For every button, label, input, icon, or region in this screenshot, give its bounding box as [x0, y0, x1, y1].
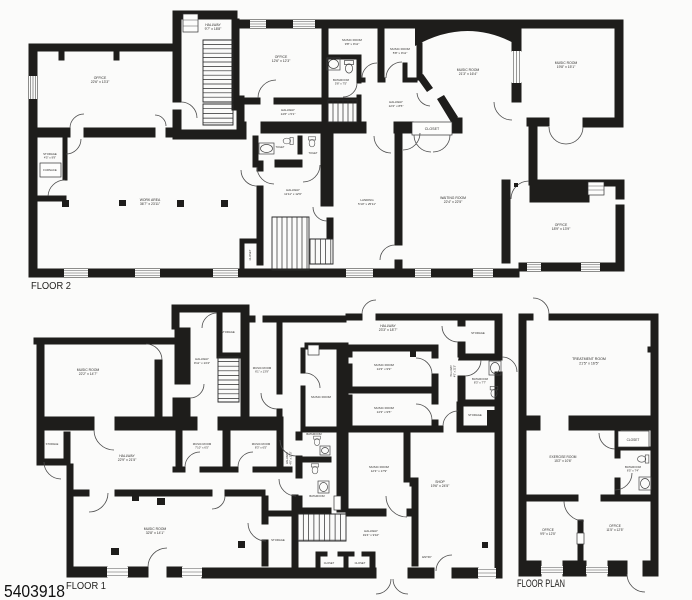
svg-text:HALLWAY14'6" x 5'1": HALLWAY14'6" x 5'1"	[281, 108, 296, 116]
svg-text:WORK AREA36'7" x 23'11": WORK AREA36'7" x 23'11"	[140, 198, 161, 206]
svg-text:STORAGE: STORAGE	[271, 538, 285, 542]
svg-text:MUSIC ROOM: MUSIC ROOM	[311, 395, 331, 399]
svg-text:HALLWAY22'9" x 21'5": HALLWAY22'9" x 21'5"	[118, 454, 137, 462]
svg-text:ENTRY: ENTRY	[422, 555, 432, 559]
svg-text:LANDING5'10" x 25'11": LANDING5'10" x 25'11"	[358, 198, 376, 206]
svg-text:HALLWAY9'7" x 18'8": HALLWAY9'7" x 18'8"	[205, 23, 223, 31]
svg-text:5403918: 5403918	[4, 581, 65, 600]
svg-text:CLOSET: CLOSET	[324, 561, 335, 565]
svg-text:OFFICE9'9" x 12'5": OFFICE9'9" x 12'5"	[540, 528, 556, 536]
svg-text:CLOSET: CLOSET	[425, 127, 440, 131]
svg-text:STORAGE: STORAGE	[468, 413, 482, 417]
svg-text:MUSIC ROOM12'3" x 17'9": MUSIC ROOM12'3" x 17'9"	[369, 465, 389, 473]
svg-text:FLOOR 2: FLOOR 2	[31, 280, 71, 292]
svg-text:HALLWAY11'11" x 12'9": HALLWAY11'11" x 12'9"	[284, 188, 302, 196]
svg-text:WAITING ROOM22'4" x 22'5": WAITING ROOM22'4" x 22'5"	[440, 196, 466, 204]
svg-text:MUSIC ROOM22'2" x 14'7": MUSIC ROOM22'2" x 14'7"	[77, 368, 100, 376]
svg-text:HALLWAY9'11" x 13'4": HALLWAY9'11" x 13'4"	[194, 357, 210, 365]
svg-text:STORAGE4'5" x 9'9": STORAGE4'5" x 9'9"	[43, 152, 57, 160]
svg-text:MUSIC ROOM19'8" x 15'1": MUSIC ROOM19'8" x 15'1"	[555, 61, 578, 69]
svg-text:TOILET: TOILET	[308, 151, 317, 155]
svg-text:HALLWAY12'2" x 8'5": HALLWAY12'2" x 8'5"	[389, 100, 404, 108]
svg-text:HALLWAY19'4" x 9'10": HALLWAY19'4" x 9'10"	[363, 529, 379, 537]
svg-text:FURNACE: FURNACE	[43, 168, 57, 172]
svg-text:CLOSET: CLOSET	[248, 249, 252, 260]
svg-text:HALLWAY4'0" x 21'5": HALLWAY4'0" x 21'5"	[450, 365, 456, 377]
svg-text:HALLWAY4'0" x 21'5": HALLWAY4'0" x 21'5"	[285, 451, 293, 464]
svg-text:STORAGE: STORAGE	[221, 330, 235, 334]
svg-text:MUSIC ROOM32'8" x 14'1": MUSIC ROOM32'8" x 14'1"	[144, 527, 167, 535]
svg-text:MUSIC ROOM21'3" x 16'4": MUSIC ROOM21'3" x 16'4"	[457, 68, 480, 76]
svg-text:STORAGE: STORAGE	[46, 442, 59, 446]
svg-text:TOILET: TOILET	[275, 145, 284, 149]
svg-text:FLOOR PLAN: FLOOR PLAN	[517, 578, 565, 590]
svg-text:BATHROOM: BATHROOM	[309, 494, 325, 498]
svg-text:MUSIC ROOM14'3" x 9'9": MUSIC ROOM14'3" x 9'9"	[374, 363, 394, 371]
svg-text:MUSIC ROOM14'3" x 9'5": MUSIC ROOM14'3" x 9'5"	[374, 406, 394, 414]
svg-text:STORAGE: STORAGE	[471, 331, 485, 335]
svg-text:CLOSET: CLOSET	[627, 438, 640, 442]
svg-text:BATHROOM: BATHROOM	[306, 432, 322, 436]
svg-text:HALLWAY23'3" x 18'7": HALLWAY23'3" x 18'7"	[379, 324, 398, 332]
svg-text:CLOSET: CLOSET	[355, 561, 366, 565]
svg-text:FLOOR 1: FLOOR 1	[66, 580, 106, 592]
